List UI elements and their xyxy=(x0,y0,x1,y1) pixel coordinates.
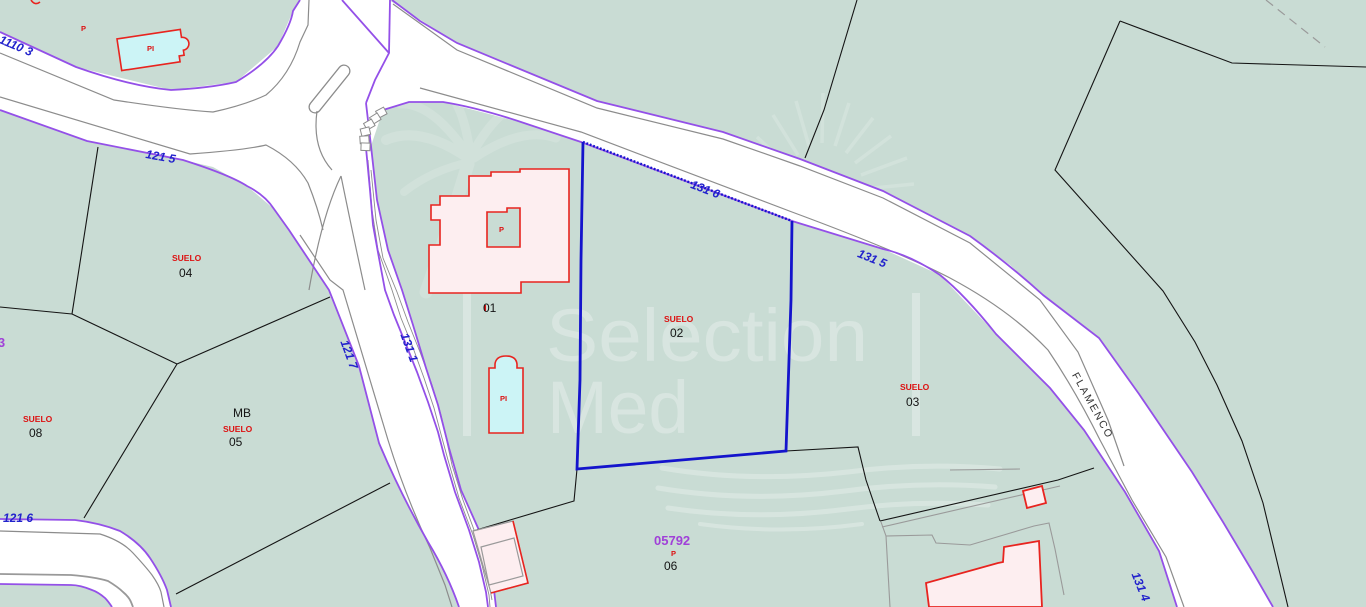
svg-text:Med: Med xyxy=(547,366,689,449)
svg-text:MB: MB xyxy=(233,406,251,420)
svg-text:SUELO: SUELO xyxy=(223,424,253,434)
svg-text:03: 03 xyxy=(906,395,920,409)
svg-text:SUELO: SUELO xyxy=(23,414,53,424)
svg-text:08: 08 xyxy=(29,426,43,440)
svg-text:01: 01 xyxy=(483,301,497,315)
svg-text:P: P xyxy=(499,225,504,234)
svg-text:P: P xyxy=(671,549,676,558)
svg-text:PI: PI xyxy=(500,394,507,403)
svg-text:05: 05 xyxy=(229,435,243,449)
svg-text:SUELO: SUELO xyxy=(900,382,930,392)
svg-text:SUELO: SUELO xyxy=(664,314,694,324)
svg-text:05792: 05792 xyxy=(654,533,690,548)
svg-text:PI: PI xyxy=(147,44,154,53)
svg-text:121 6: 121 6 xyxy=(3,511,33,525)
svg-text:05793: 05793 xyxy=(0,335,5,350)
svg-text:04: 04 xyxy=(179,266,193,280)
svg-text:06: 06 xyxy=(664,559,678,573)
svg-text:P: P xyxy=(81,24,86,33)
svg-text:Selection: Selection xyxy=(546,294,868,377)
svg-text:02: 02 xyxy=(670,326,684,340)
svg-text:SUELO: SUELO xyxy=(172,253,202,263)
